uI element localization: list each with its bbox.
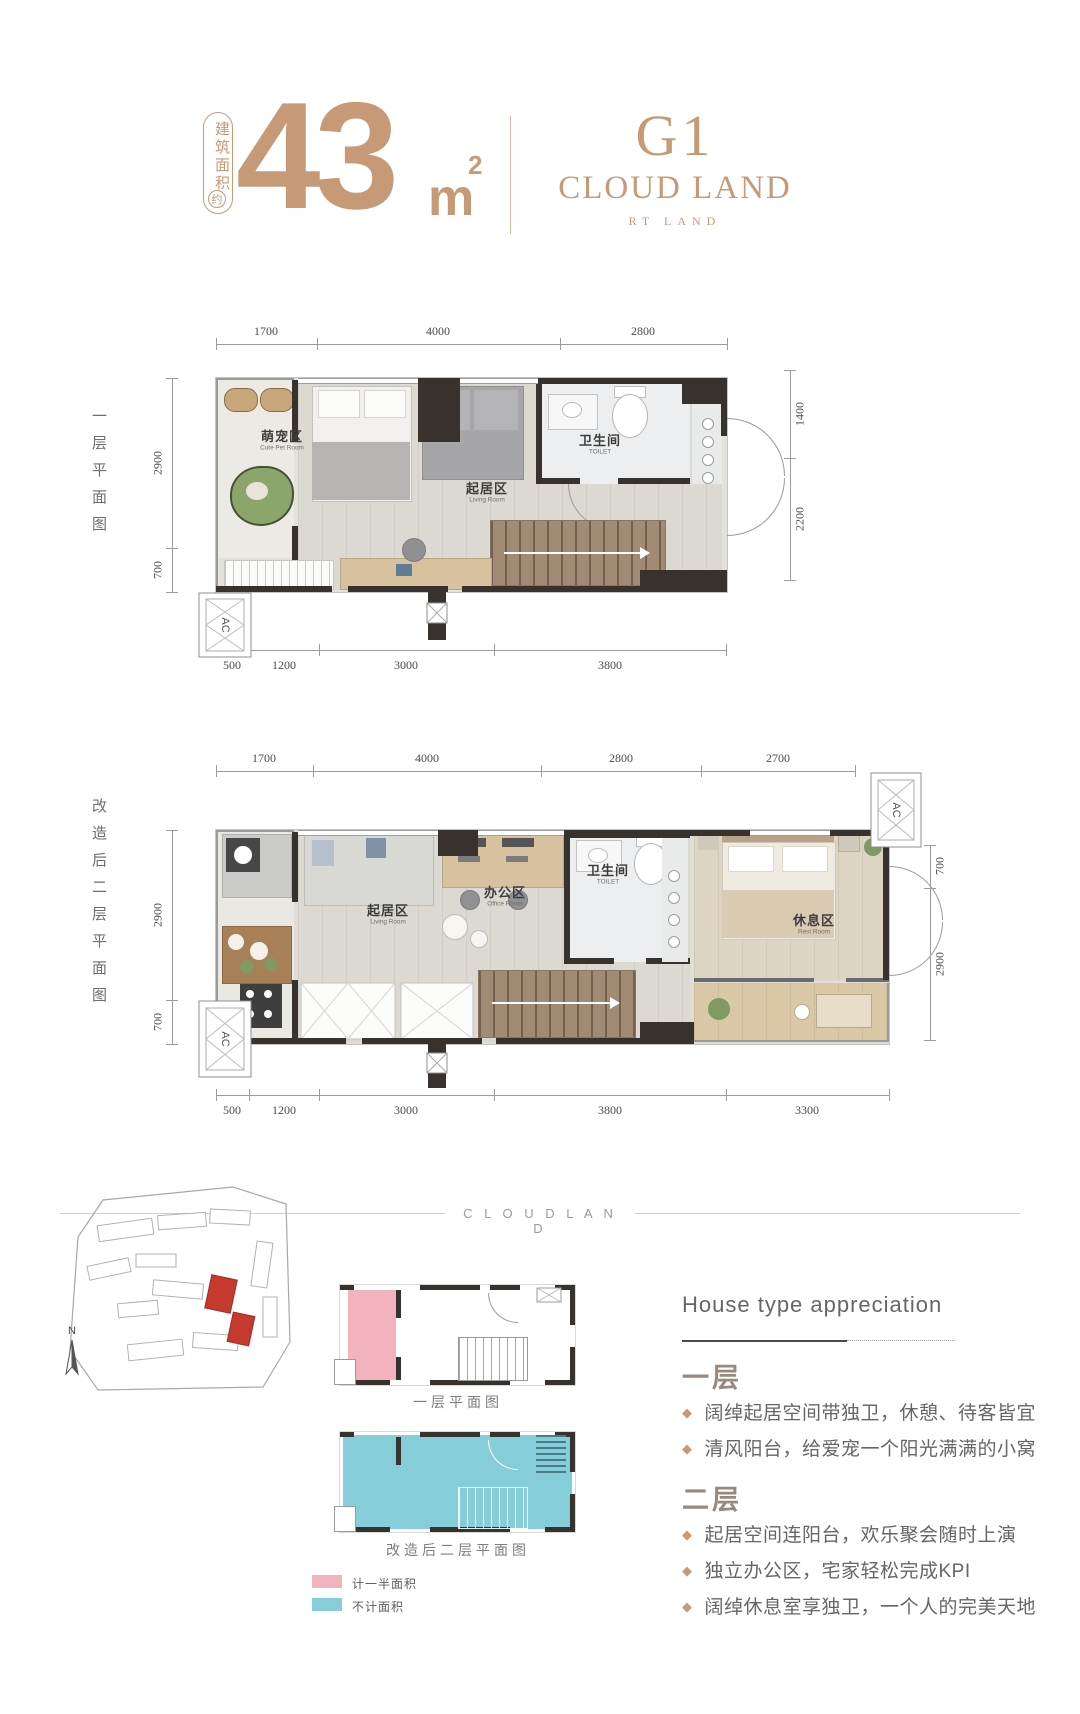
window	[478, 830, 564, 836]
lounge-chair	[816, 994, 872, 1028]
area-unit-sup: 2	[468, 152, 482, 178]
tick	[784, 458, 796, 459]
dim-label: 1200	[272, 1103, 296, 1118]
wall-segment	[496, 1038, 640, 1044]
mini-hatch	[536, 1435, 566, 1473]
window	[298, 378, 418, 384]
bed-pillow	[364, 390, 406, 418]
tick	[924, 1040, 936, 1041]
tick	[216, 765, 217, 777]
dim-label: 4000	[426, 324, 450, 339]
sink-basin	[234, 846, 252, 864]
bullet-diamond-icon: ◆	[682, 1441, 693, 1456]
bullet-text: 阔绰休息室享独卫，一个人的完美天地	[705, 1597, 1037, 1618]
room-name-en: Living Room	[469, 497, 505, 504]
wall-segment	[362, 1038, 482, 1044]
shelf-knob	[702, 418, 714, 430]
title-underline-solid	[682, 1340, 847, 1342]
stairs-arrow-head	[640, 547, 650, 559]
room-name-zh: 办公区	[483, 886, 527, 900]
shelf-knob	[668, 936, 680, 948]
ac-label: AC	[219, 617, 231, 632]
bullet-item: ◆阔绰起居空间带独卫，休憩、待客皆宜	[682, 1398, 1036, 1425]
dim-label: 3000	[394, 1103, 418, 1118]
floor1-plan: 萌宠区 Cute Pet Room 起居区 Living Room 卫生间 TO…	[216, 378, 727, 592]
tick	[319, 1089, 320, 1101]
dim-label: 2900	[933, 952, 948, 976]
tick	[216, 338, 217, 350]
bullet-diamond-icon: ◆	[682, 1527, 693, 1542]
mini-wall	[420, 1432, 480, 1437]
mini-ac	[334, 1359, 356, 1385]
mini-wall	[490, 1432, 520, 1437]
mini-wall	[570, 1494, 575, 1532]
pet-bed	[224, 388, 258, 412]
bed-pillow	[782, 846, 828, 872]
monitor	[502, 838, 534, 847]
tick	[889, 1089, 890, 1101]
tick	[726, 1089, 727, 1101]
header-divider	[510, 116, 511, 234]
divider-line-right	[635, 1213, 1020, 1214]
pet-bed	[260, 388, 294, 412]
balcony-glazing-top	[216, 378, 294, 380]
floor2-dim-line-top	[216, 771, 855, 772]
floor1-dim-line-left	[172, 378, 173, 592]
room-name-en: TOILET	[591, 879, 625, 886]
mini-vent	[536, 1287, 562, 1303]
stairs-arrow	[504, 552, 640, 554]
compass-icon	[72, 1340, 78, 1374]
washer-knob	[246, 990, 254, 998]
area-badge-label: 建筑面积	[204, 121, 232, 193]
dim-label: 3800	[598, 1103, 622, 1118]
legend-label-none: 不计面积	[352, 1598, 404, 1615]
bullet-text: 起居空间连阳台，欢乐聚会随时上演	[705, 1525, 1017, 1546]
ac-label: AC	[890, 802, 902, 817]
bed-blanket	[312, 442, 410, 500]
room-name-zh: 起居区	[366, 904, 410, 918]
chair	[460, 890, 480, 910]
wall-segment	[640, 1022, 694, 1044]
dim-label: 1700	[254, 324, 278, 339]
tick	[784, 580, 796, 581]
floor2-dim-line-left	[172, 830, 173, 1044]
brochure-page: 建筑面积 约 43 m 2 G1 CLOUD LAND RT LAND 一层平面…	[0, 0, 1080, 1714]
tick	[784, 370, 796, 371]
room-name-en: Office Room	[487, 901, 522, 908]
dim-label: 3800	[598, 658, 622, 673]
building-outline	[251, 1241, 273, 1288]
sofa-cushion	[474, 390, 518, 430]
bullet-item: ◆独立办公区，宅家轻松完成KPI	[682, 1556, 971, 1583]
mini-wall	[570, 1285, 575, 1325]
room-name-zh: 起居区	[465, 482, 509, 496]
room-label-living: 起居区 Living Room	[465, 482, 509, 505]
ac-label: AC	[219, 1031, 231, 1046]
dim-label: 700	[933, 857, 948, 875]
wall-segment	[536, 380, 542, 484]
tick	[319, 644, 320, 656]
tick	[166, 378, 178, 379]
room-name-en: TOILET	[583, 449, 617, 456]
sink-basin	[588, 848, 608, 863]
appreciation-title: House type appreciation	[682, 1292, 942, 1318]
vent-box	[426, 602, 448, 624]
floor1-dim-line-top	[216, 344, 727, 345]
section-heading-floor2: 二层	[682, 1478, 742, 1517]
balcony-glazing-top	[216, 830, 294, 832]
dim-label: 2900	[151, 451, 166, 475]
window	[298, 830, 438, 836]
dim-label: 4000	[415, 751, 439, 766]
balcony-glazing	[216, 378, 218, 592]
logo-g1: G1	[545, 104, 805, 168]
dim-label: 1400	[793, 402, 808, 426]
wardrobe-item	[366, 838, 386, 858]
shelf-knob	[668, 914, 680, 926]
vent-box	[426, 1052, 448, 1074]
tick	[541, 765, 542, 777]
cabinet	[300, 982, 396, 1040]
wardrobe-item	[312, 840, 334, 866]
ac-unit: AC	[198, 1000, 252, 1078]
shelf-knob	[702, 454, 714, 466]
mini-ac	[334, 1506, 356, 1532]
compass-label: N	[68, 1325, 76, 1337]
legend-swatch-none	[312, 1598, 342, 1611]
bullet-diamond-icon: ◆	[682, 1563, 693, 1578]
dim-label: 2800	[631, 324, 655, 339]
dim-label: 2700	[766, 751, 790, 766]
keyboard	[506, 856, 528, 862]
building-outline	[127, 1339, 183, 1361]
mini-wall	[490, 1285, 520, 1290]
room-name-zh: 卫生间	[579, 434, 621, 448]
bullet-text: 独立办公区，宅家轻松完成KPI	[705, 1561, 971, 1582]
floor2-dim-line-bottom	[216, 1095, 889, 1096]
balcony-rail	[694, 1040, 889, 1042]
wall-segment	[418, 378, 460, 442]
shelf-knob	[668, 892, 680, 904]
mini-wall	[396, 1290, 401, 1318]
room-name-en: Cute Pet Room	[260, 445, 304, 452]
tick	[166, 830, 178, 831]
mini-wall	[420, 1285, 480, 1290]
washer-knob	[264, 1010, 272, 1018]
flower	[228, 934, 244, 950]
mini-plan-1-label: 一层平面图	[413, 1392, 503, 1412]
tick	[494, 644, 495, 656]
room-name-zh: 萌宠区	[255, 430, 310, 444]
tick	[560, 338, 561, 350]
area-badge-approx: 约	[208, 190, 226, 208]
dim-label: 2800	[609, 751, 633, 766]
floor2-side-label: 改造后二层平面图	[88, 798, 109, 1014]
wall-segment	[564, 958, 614, 964]
building-outline	[97, 1218, 154, 1241]
window	[750, 830, 830, 836]
shelf-knob	[702, 472, 714, 484]
coffee-table	[470, 930, 488, 948]
shelf-knob	[702, 436, 714, 448]
building-outline	[263, 1297, 277, 1337]
flower	[240, 960, 254, 974]
flower	[250, 942, 268, 960]
dim-label: 500	[223, 658, 241, 673]
building-outline	[87, 1258, 131, 1280]
mini-wall	[396, 1357, 401, 1380]
dim-label: 1700	[252, 751, 276, 766]
mini-stairs	[458, 1337, 528, 1381]
ac-frame: AC	[198, 1000, 252, 1078]
mini-plan-1	[340, 1285, 575, 1385]
washer-knob	[264, 990, 272, 998]
tick	[166, 1000, 178, 1001]
bed-pillow	[728, 846, 774, 872]
bullet-text: 阔绰起居空间带独卫，休憩、待客皆宜	[705, 1403, 1037, 1424]
wall-segment	[690, 830, 750, 836]
site-plan: N	[58, 1182, 298, 1407]
room-label-office: 办公区 Office Room	[483, 886, 527, 909]
building-outline	[152, 1280, 203, 1299]
legend-label-half: 计一半面积	[352, 1575, 417, 1592]
mini-wall	[396, 1437, 401, 1465]
wall-segment	[564, 830, 690, 838]
bullet-diamond-icon: ◆	[682, 1405, 693, 1420]
room-label-toilet: 卫生间 TOILET	[579, 434, 621, 457]
pet-rug-center	[246, 482, 268, 500]
mini-wall	[570, 1432, 575, 1472]
building-outline	[117, 1300, 158, 1317]
laptop	[396, 564, 412, 576]
floor2-plan: 起居区 Living Room 办公区 Office Room 卫生间 TOIL…	[216, 830, 889, 1044]
toilet	[612, 394, 648, 438]
wall-segment	[438, 830, 478, 856]
tick	[166, 1044, 178, 1045]
dim-label: 700	[151, 561, 166, 579]
tick	[494, 1089, 495, 1101]
cabinet-frame	[301, 983, 395, 1039]
shelf-knob	[668, 870, 680, 882]
floor1-side-label: 一层平面图	[88, 408, 109, 543]
dim-label: 3000	[394, 658, 418, 673]
bullet-text: 清风阳台，给爱宠一个阳光满满的小窝	[705, 1439, 1037, 1460]
door-arc	[727, 418, 785, 476]
dim-label: 3300	[795, 1103, 819, 1118]
room-label-pet: 萌宠区 Cute Pet Room	[255, 430, 310, 453]
dim-label: 2200	[793, 507, 808, 531]
stairs-arrow-head	[610, 997, 620, 1009]
wall-segment	[694, 978, 814, 982]
title-underline-dotted	[847, 1340, 955, 1341]
floor1-dim-line-bottom	[216, 650, 726, 651]
ac-unit: AC	[198, 592, 252, 658]
bed-pillow	[318, 390, 360, 418]
room-label-rest: 休息区 Rest Room	[793, 914, 835, 937]
room-label-toilet: 卫生间 TOILET	[587, 864, 629, 887]
bullet-item: ◆清风阳台，给爱宠一个阳光满满的小窝	[682, 1434, 1036, 1461]
building-outline	[136, 1254, 176, 1267]
door-arc	[727, 478, 785, 536]
side-table	[794, 1004, 810, 1020]
dim-label: 2900	[151, 903, 166, 927]
room-name-en: Living Room	[370, 919, 406, 926]
balcony-rail	[887, 983, 889, 1042]
wall-segment	[564, 832, 570, 962]
legend-swatch-half	[312, 1575, 342, 1588]
mini-plan-2-label: 改造后二层平面图	[386, 1540, 530, 1560]
bullet-item: ◆起居空间连阳台，欢乐聚会随时上演	[682, 1520, 1017, 1547]
building-outline	[158, 1212, 207, 1229]
ac-unit: AC	[870, 772, 922, 848]
mini-wall	[340, 1285, 354, 1290]
compass-icon	[66, 1340, 72, 1374]
ac-frame: AC	[870, 772, 922, 848]
room-name-en: Rest Room	[797, 929, 831, 936]
flower	[264, 958, 277, 971]
wall-segment	[538, 378, 690, 384]
section-heading-floor1: 一层	[682, 1356, 742, 1395]
tick	[249, 1089, 250, 1101]
bullet-diamond-icon: ◆	[682, 1599, 693, 1614]
keyboard	[458, 856, 480, 862]
tick	[855, 765, 856, 777]
logo-rtland: RT LAND	[545, 214, 805, 229]
tick	[166, 592, 178, 593]
logo-cloudland: CLOUD LAND	[545, 170, 805, 207]
wall-segment	[640, 570, 727, 592]
dim-label: 500	[223, 1103, 241, 1118]
sink-basin	[562, 402, 582, 418]
bullet-item: ◆阔绰休息室享独卫，一个人的完美天地	[682, 1592, 1036, 1619]
wall-segment	[618, 478, 690, 484]
tick	[924, 845, 936, 846]
mini-stairs	[458, 1487, 528, 1529]
area-value: 43	[236, 80, 393, 232]
tick	[166, 548, 178, 549]
chair	[402, 538, 426, 562]
wall-segment	[462, 586, 652, 592]
tick	[727, 338, 728, 350]
tick	[701, 765, 702, 777]
area-badge: 建筑面积 约	[203, 112, 233, 214]
building-outline	[210, 1209, 251, 1225]
tick	[216, 1089, 217, 1101]
stairs-arrow	[492, 1002, 610, 1004]
mini-wall	[340, 1432, 354, 1437]
dim-label: 1200	[272, 658, 296, 673]
room-name-zh: 休息区	[793, 914, 835, 928]
plant	[708, 998, 730, 1020]
divider-brand: C L O U D L A N D	[455, 1206, 625, 1236]
mini-plan-2	[340, 1432, 575, 1532]
tick	[313, 765, 314, 777]
room-label-living: 起居区 Living Room	[366, 904, 410, 927]
highlight-building	[205, 1275, 238, 1314]
highlight-building	[227, 1312, 255, 1346]
mini-wall	[570, 1347, 575, 1385]
tick	[317, 338, 318, 350]
room-name-zh: 卫生间	[587, 864, 629, 878]
ac-frame: AC	[198, 592, 252, 658]
coffee-table	[442, 914, 468, 940]
tick	[726, 644, 727, 656]
window	[460, 378, 538, 384]
floor1-dim-line-right	[790, 370, 791, 580]
dim-label: 700	[151, 1013, 166, 1031]
cabinet	[400, 982, 474, 1040]
